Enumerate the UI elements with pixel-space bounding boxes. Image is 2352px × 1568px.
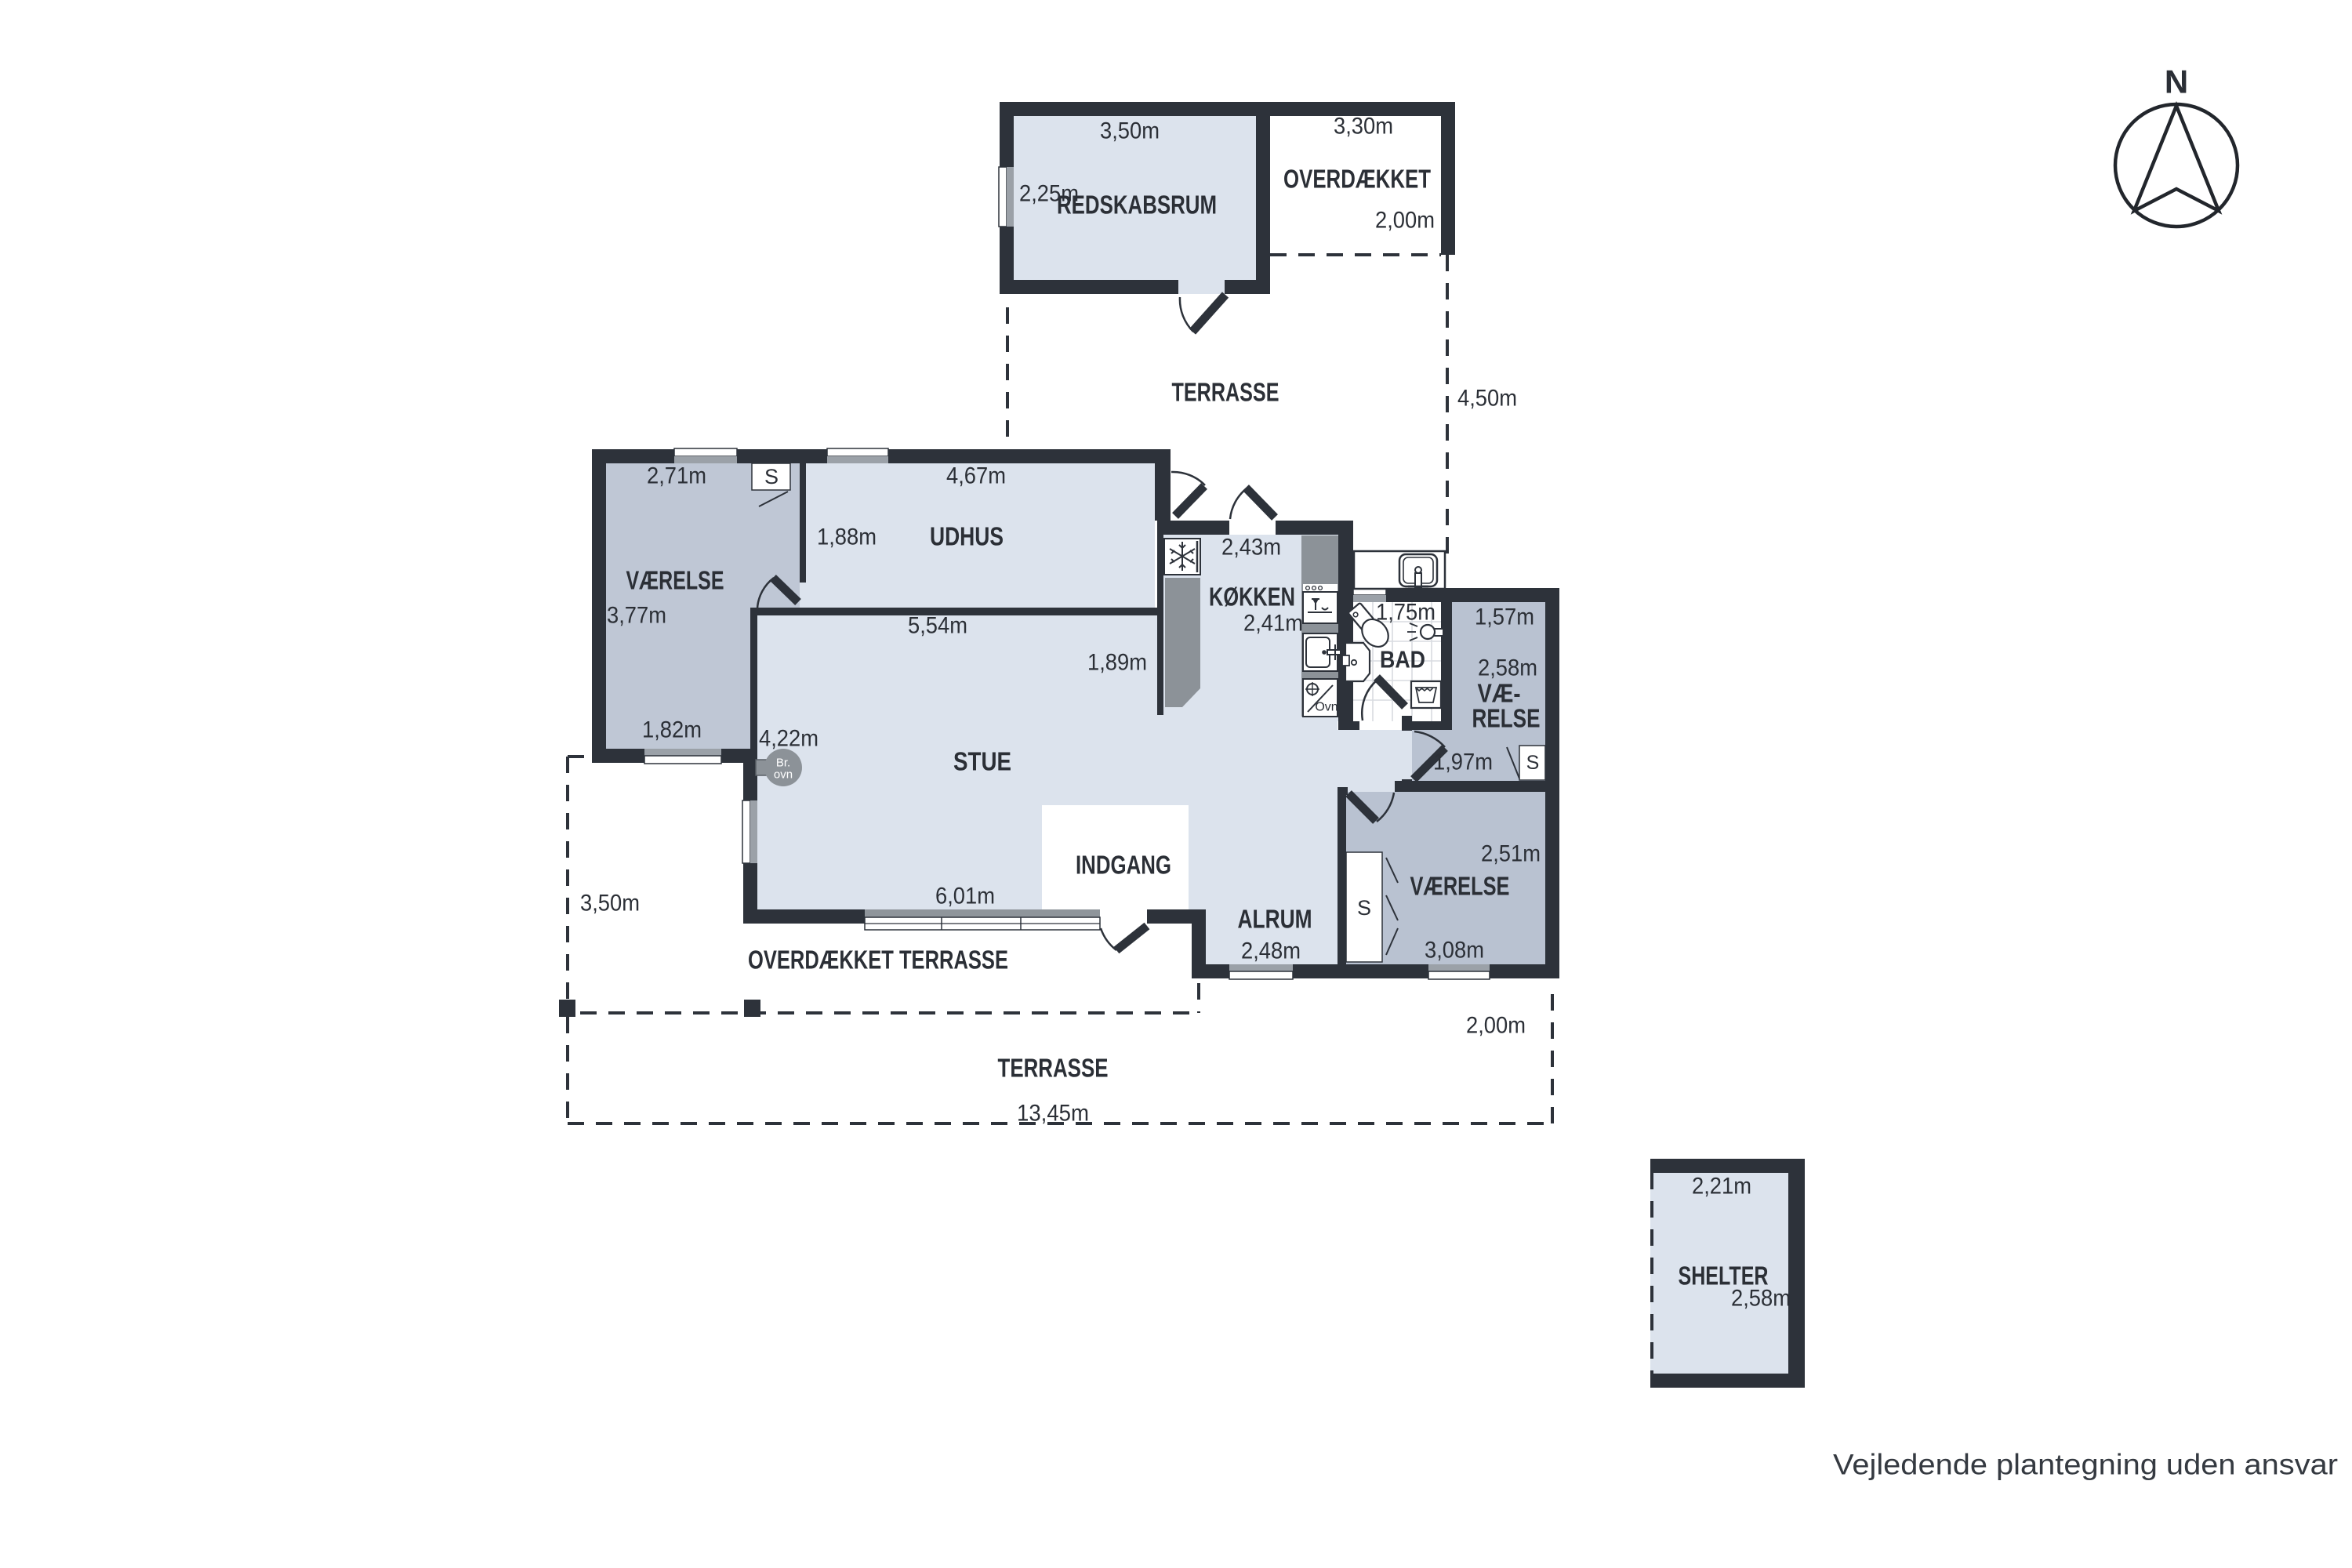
svg-text:3,50m: 3,50m bbox=[580, 891, 640, 916]
svg-text:S: S bbox=[1357, 896, 1371, 920]
svg-text:2,58m: 2,58m bbox=[1731, 1286, 1791, 1312]
svg-text:S: S bbox=[764, 465, 779, 488]
svg-text:1,75m: 1,75m bbox=[1376, 600, 1436, 626]
svg-text:2,58m: 2,58m bbox=[1478, 655, 1537, 681]
svg-text:REDSKABSRUM: REDSKABSRUM bbox=[1057, 191, 1217, 220]
svg-text:1,57m: 1,57m bbox=[1475, 604, 1534, 630]
svg-text:1,82m: 1,82m bbox=[642, 717, 702, 743]
svg-text:Ovn: Ovn bbox=[1315, 701, 1338, 714]
svg-text:2,00m: 2,00m bbox=[1466, 1013, 1526, 1039]
svg-text:1,89m: 1,89m bbox=[1087, 650, 1147, 676]
svg-text:ALRUM: ALRUM bbox=[1238, 905, 1312, 934]
svg-text:VÆRELSE: VÆRELSE bbox=[626, 566, 724, 595]
svg-text:3,50m: 3,50m bbox=[1100, 118, 1160, 144]
svg-text:TERRASSE: TERRASSE bbox=[1172, 378, 1279, 407]
svg-text:S: S bbox=[1526, 752, 1540, 774]
svg-text:N: N bbox=[2165, 64, 2188, 100]
svg-text:4,22m: 4,22m bbox=[759, 726, 818, 752]
svg-text:OVERDÆKKET TERRASSE: OVERDÆKKET TERRASSE bbox=[748, 946, 1008, 975]
svg-text:KØKKEN: KØKKEN bbox=[1209, 583, 1295, 612]
svg-text:4,50m: 4,50m bbox=[1457, 386, 1517, 412]
svg-text:Vejledende plantegning uden an: Vejledende plantegning uden ansvar bbox=[1833, 1449, 2338, 1481]
svg-text:OVERDÆKKET: OVERDÆKKET bbox=[1283, 165, 1431, 194]
svg-text:13,45m: 13,45m bbox=[1017, 1101, 1089, 1127]
svg-text:UDHUS: UDHUS bbox=[930, 522, 1004, 551]
svg-text:ovn: ovn bbox=[774, 768, 793, 782]
svg-text:2,00m: 2,00m bbox=[1375, 208, 1435, 234]
svg-text:6,01m: 6,01m bbox=[935, 884, 995, 909]
svg-text:5,54m: 5,54m bbox=[908, 613, 967, 639]
svg-text:STUE: STUE bbox=[953, 747, 1011, 776]
svg-text:3,08m: 3,08m bbox=[1425, 938, 1484, 964]
svg-text:VÆRELSE: VÆRELSE bbox=[1410, 872, 1510, 901]
svg-text:1,97m: 1,97m bbox=[1433, 750, 1493, 775]
svg-text:INDGANG: INDGANG bbox=[1076, 851, 1171, 880]
svg-text:2,48m: 2,48m bbox=[1241, 938, 1301, 964]
svg-text:2,21m: 2,21m bbox=[1692, 1174, 1751, 1200]
svg-text:2,43m: 2,43m bbox=[1221, 535, 1281, 561]
svg-text:TERRASSE: TERRASSE bbox=[998, 1054, 1109, 1083]
svg-text:1,88m: 1,88m bbox=[817, 524, 877, 550]
svg-text:4,67m: 4,67m bbox=[946, 463, 1006, 489]
svg-text:3,30m: 3,30m bbox=[1334, 114, 1393, 140]
svg-text:2,51m: 2,51m bbox=[1481, 841, 1541, 867]
svg-text:2,71m: 2,71m bbox=[647, 463, 706, 489]
svg-text:3,77m: 3,77m bbox=[607, 603, 666, 629]
svg-text:RELSE: RELSE bbox=[1472, 704, 1541, 733]
svg-text:2,41m: 2,41m bbox=[1243, 611, 1303, 637]
svg-text:BAD: BAD bbox=[1380, 646, 1425, 673]
